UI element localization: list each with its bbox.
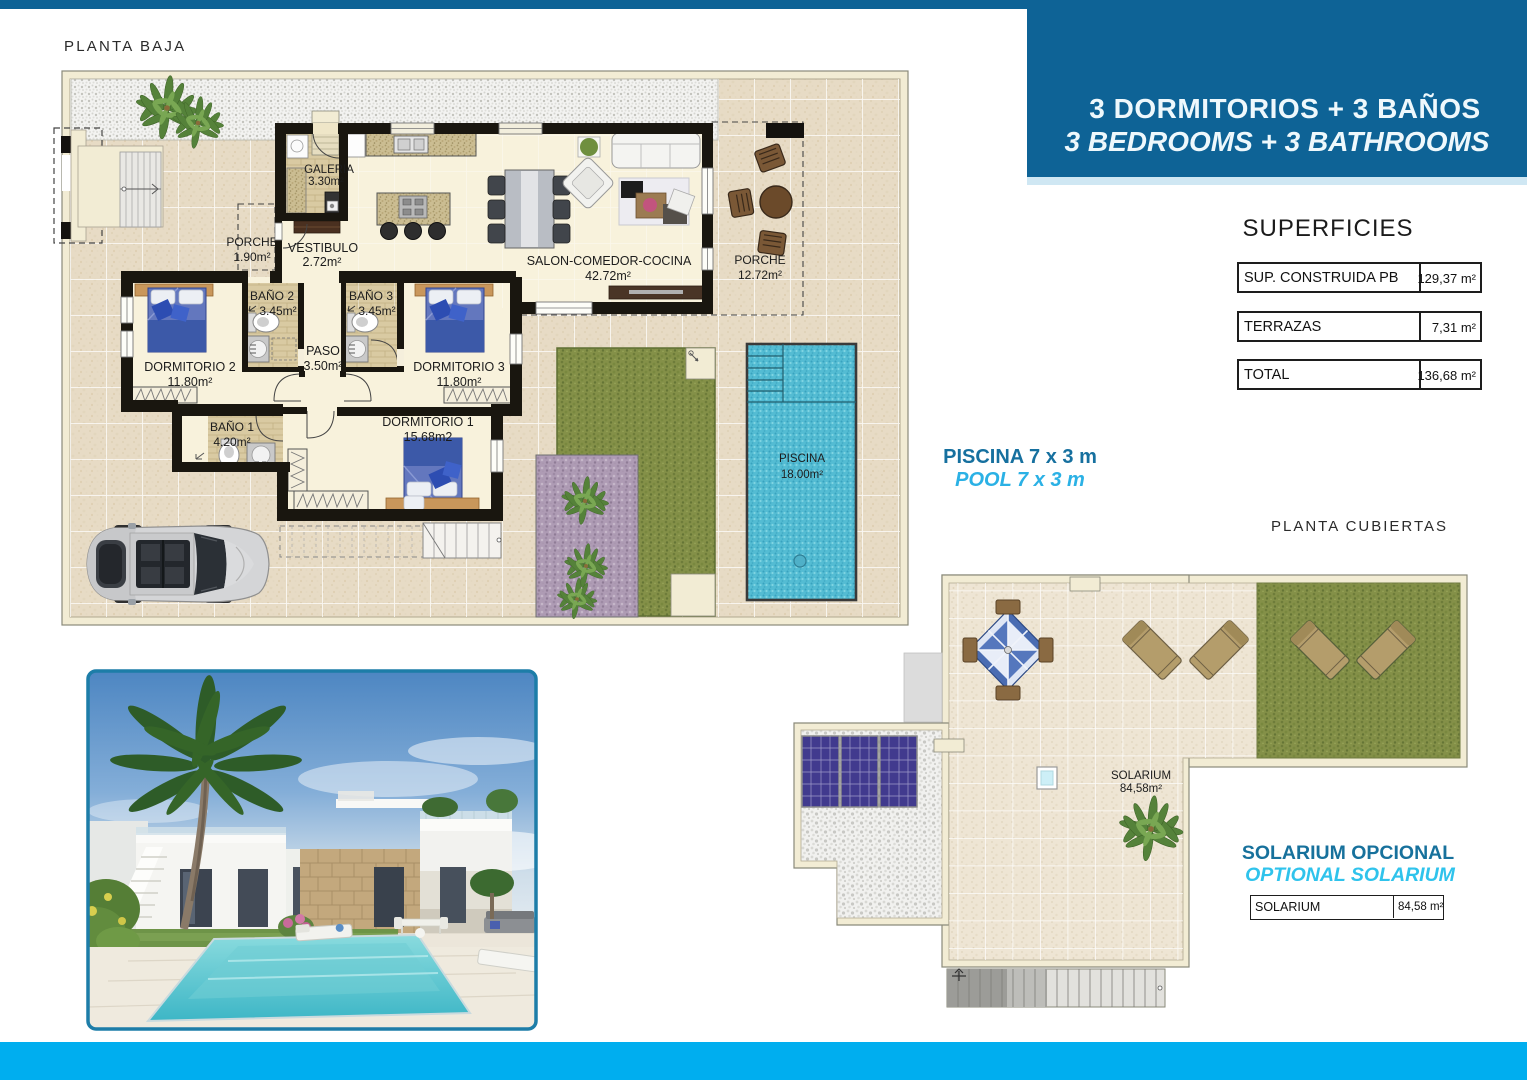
svg-text:PASO: PASO xyxy=(306,344,340,358)
svg-text:DORMITORIO 2: DORMITORIO 2 xyxy=(144,360,235,374)
svg-text:3.45m²: 3.45m² xyxy=(358,304,395,318)
svg-text:3.30m²: 3.30m² xyxy=(308,176,344,188)
svg-text:SALON-COMEDOR-COCINA: SALON-COMEDOR-COCINA xyxy=(527,254,692,268)
svg-text:SOLARIUM: SOLARIUM xyxy=(1111,770,1171,782)
svg-text:84,58m²: 84,58m² xyxy=(1120,783,1162,795)
svg-text:BAÑO 3: BAÑO 3 xyxy=(349,289,393,303)
svg-text:15.68m2: 15.68m2 xyxy=(404,430,453,444)
svg-text:18.00m²: 18.00m² xyxy=(781,469,823,481)
svg-text:42.72m²: 42.72m² xyxy=(585,269,631,283)
svg-text:3.50m²: 3.50m² xyxy=(304,359,343,373)
svg-text:4.20m²: 4.20m² xyxy=(213,435,250,449)
svg-text:VESTIBULO: VESTIBULO xyxy=(288,241,358,255)
svg-text:BAÑO 2: BAÑO 2 xyxy=(250,289,294,303)
svg-text:BAÑO 1: BAÑO 1 xyxy=(210,420,254,434)
svg-text:PORCHE: PORCHE xyxy=(734,253,785,267)
svg-text:1.90m²: 1.90m² xyxy=(233,250,270,264)
svg-text:3.45m²: 3.45m² xyxy=(259,304,296,318)
svg-text:11.80m²: 11.80m² xyxy=(437,375,482,389)
svg-text:DORMITORIO 3: DORMITORIO 3 xyxy=(413,360,504,374)
svg-text:2.72m²: 2.72m² xyxy=(303,255,342,269)
svg-text:PISCINA: PISCINA xyxy=(779,453,825,465)
svg-text:GALERIA: GALERIA xyxy=(304,164,354,176)
svg-text:DORMITORIO 1: DORMITORIO 1 xyxy=(382,415,473,429)
svg-text:12.72m²: 12.72m² xyxy=(738,268,782,282)
svg-text:11.80m²: 11.80m² xyxy=(168,375,213,389)
svg-text:PORCHE: PORCHE xyxy=(226,235,277,249)
